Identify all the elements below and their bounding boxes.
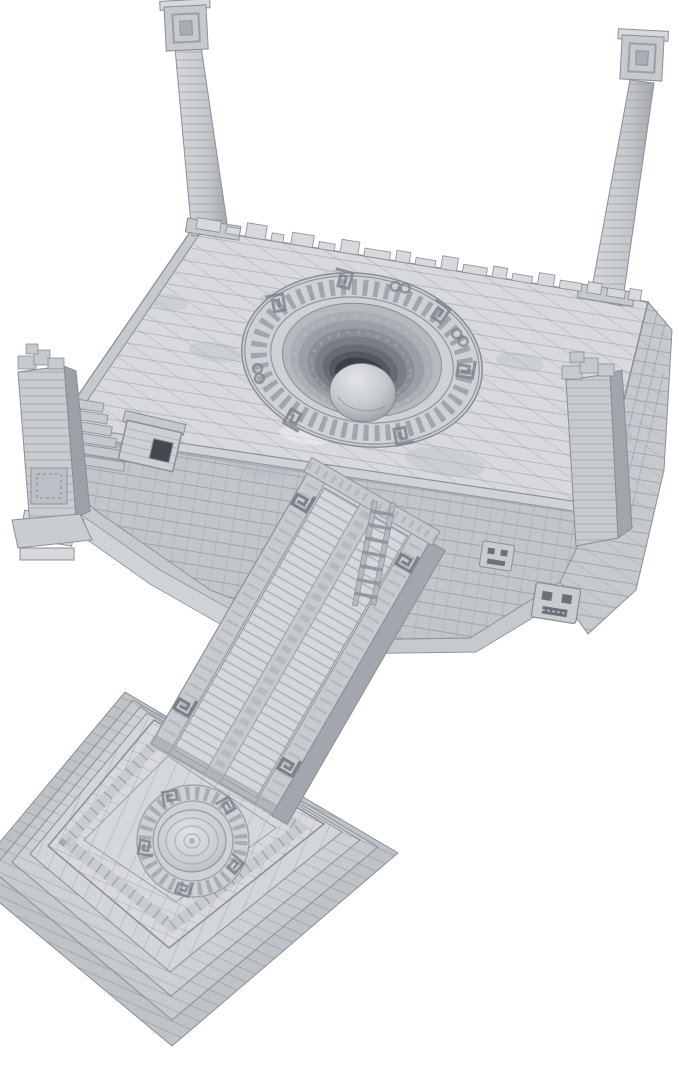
back-right-pillar: Tall masonry pillar (back right corner) (577, 29, 668, 307)
product-photo: Unpainted gray 3D-printed Aztec temple t… (0, 0, 679, 1076)
temple-terrain-illustration: Unpainted gray 3D-printed Aztec temple t… (0, 0, 679, 1076)
back-left-pillar: Tall masonry pillar (back left corner) (160, 0, 241, 240)
altar-disc: Polished oval altar disc with spiral rin… (137, 785, 249, 897)
